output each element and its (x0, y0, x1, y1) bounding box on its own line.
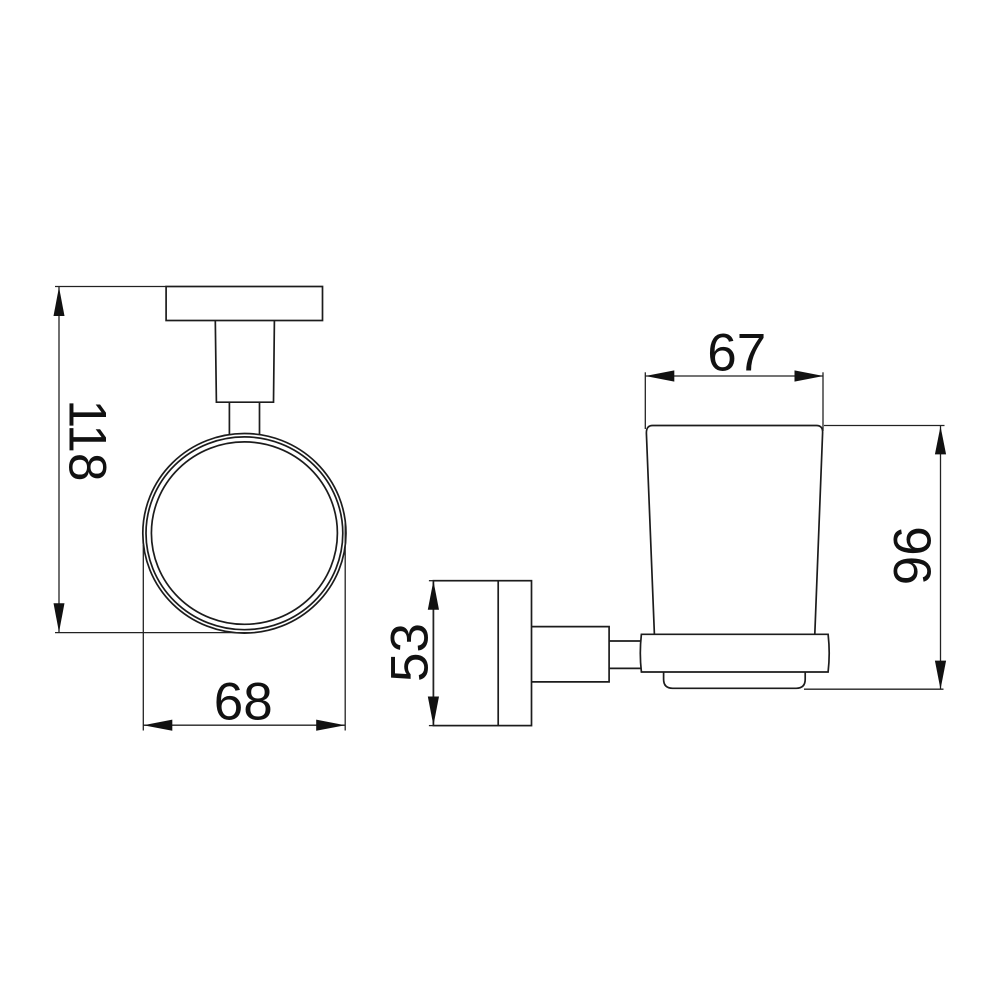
svg-text:53: 53 (381, 623, 440, 682)
svg-text:67: 67 (707, 324, 766, 383)
svg-text:68: 68 (214, 673, 273, 732)
svg-text:96: 96 (882, 526, 941, 585)
svg-text:118: 118 (58, 400, 117, 482)
